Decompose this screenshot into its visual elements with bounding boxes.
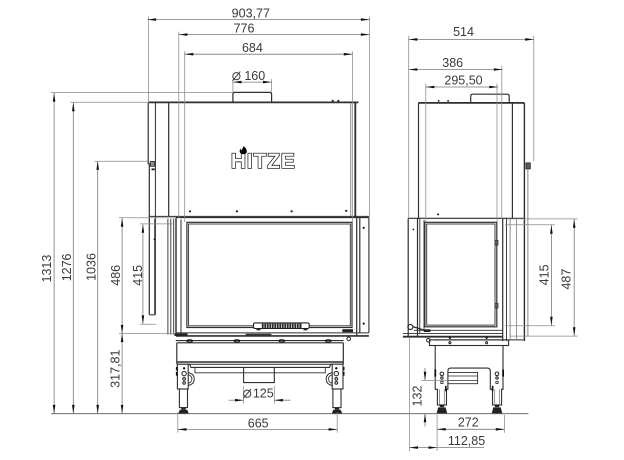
svg-text:132: 132 [410, 386, 424, 407]
svg-text:272: 272 [458, 416, 479, 430]
svg-text:112,85: 112,85 [448, 434, 485, 448]
svg-text:317,81: 317,81 [109, 350, 123, 388]
svg-text:684: 684 [242, 41, 263, 55]
svg-text:160: 160 [244, 69, 265, 83]
svg-text:1313: 1313 [40, 255, 54, 283]
svg-text:125: 125 [253, 386, 274, 400]
svg-text:665: 665 [248, 416, 269, 430]
svg-text:1036: 1036 [84, 253, 98, 281]
svg-text:903,77: 903,77 [232, 7, 270, 21]
svg-text:HITZE: HITZE [231, 150, 296, 173]
svg-text:415: 415 [131, 265, 145, 286]
svg-text:514: 514 [453, 25, 474, 39]
svg-text:1276: 1276 [60, 253, 74, 281]
svg-text:415: 415 [537, 264, 551, 285]
svg-text:776: 776 [234, 21, 255, 35]
svg-text:295,50: 295,50 [444, 73, 482, 87]
svg-text:486: 486 [109, 265, 123, 286]
svg-text:487: 487 [560, 269, 574, 290]
svg-text:386: 386 [442, 56, 463, 70]
